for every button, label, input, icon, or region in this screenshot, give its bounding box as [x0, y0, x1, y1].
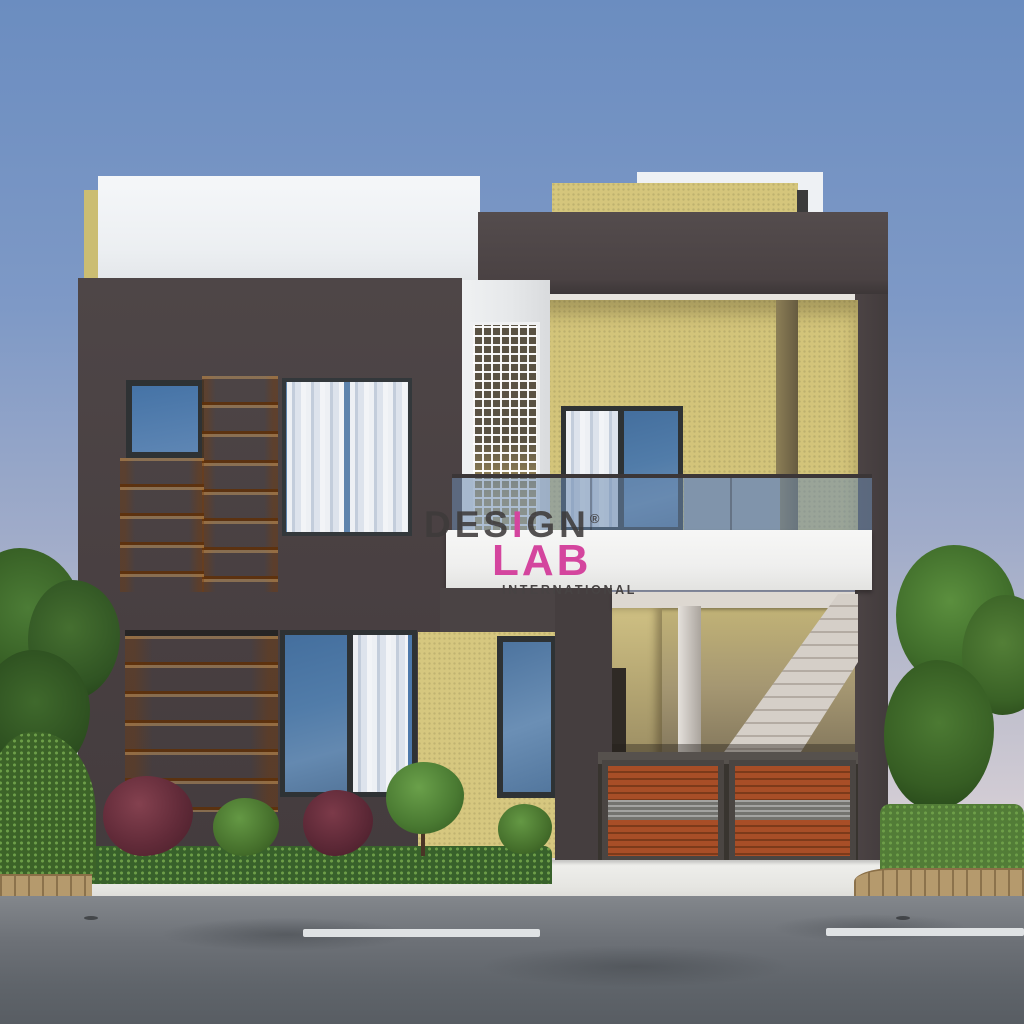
upper-wood-panel — [202, 376, 278, 592]
brand-watermark: DESIGN® LAB INTERNATIONAL — [424, 504, 634, 597]
parapet-left-white — [98, 176, 480, 280]
gate-right — [729, 760, 856, 862]
brand-tagline: INTERNATIONAL — [502, 583, 634, 597]
road-spot — [896, 916, 910, 920]
registered-mark: ® — [590, 511, 600, 526]
lane-marking-left — [303, 929, 540, 937]
gate-wood-slats-upper — [608, 766, 718, 800]
railing-divider — [730, 478, 732, 534]
gate-wood-slats-lower — [735, 820, 850, 856]
curtain-left-panel — [287, 382, 344, 532]
gate-metal-slats — [608, 800, 718, 820]
ground-tall-window — [497, 636, 557, 798]
upper-wood-panel-lower — [120, 458, 204, 592]
road-spot — [84, 916, 98, 920]
asphalt-road — [0, 896, 1024, 1024]
gate-metal-slats — [735, 800, 850, 820]
porch-column — [678, 606, 701, 764]
right-tree-canopy — [884, 660, 994, 810]
gate-wood-slats-upper — [735, 766, 850, 800]
gate-left — [602, 760, 724, 862]
curtain-right-panel — [350, 382, 408, 532]
right-hedge — [880, 804, 1024, 878]
render-canvas: DESIGN® LAB INTERNATIONAL — [0, 0, 1024, 1024]
gate-wood-slats-lower — [608, 820, 718, 856]
brand-name-lab: LAB — [492, 546, 634, 576]
porch-ceiling — [612, 592, 855, 608]
upper-small-window — [126, 380, 204, 458]
ground-window-glass-left — [285, 635, 347, 792]
upper-curtained-window — [282, 378, 412, 536]
lane-marking-right — [826, 928, 1024, 936]
